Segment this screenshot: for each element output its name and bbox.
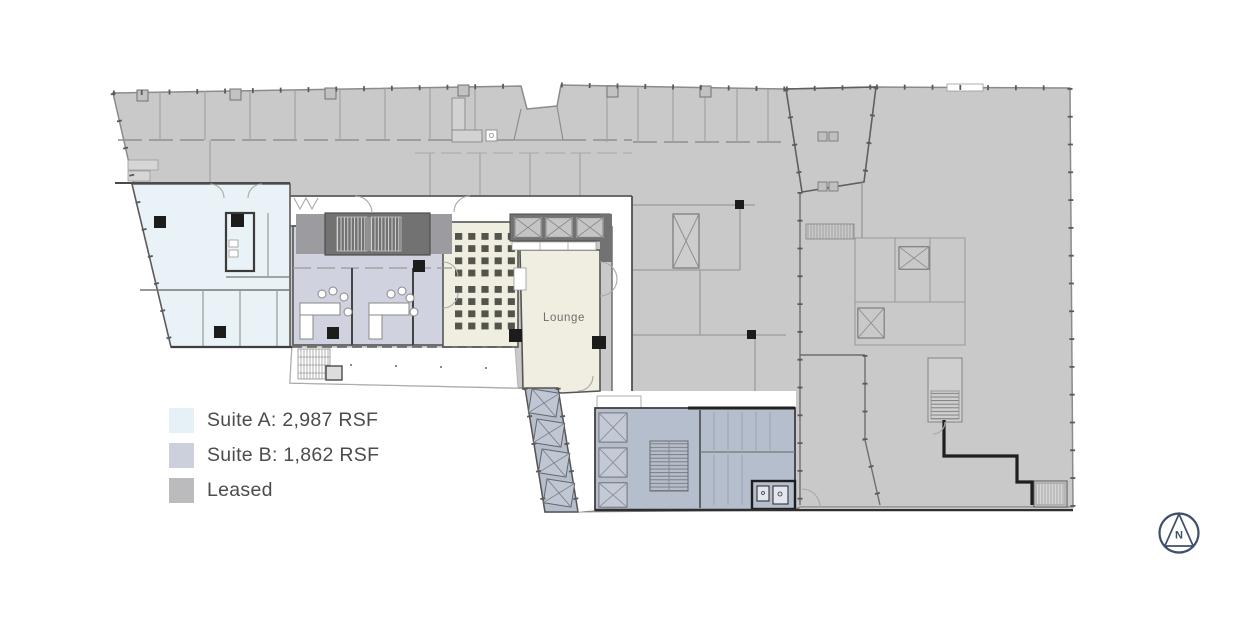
suite-b-label: Suite B: 1,862 RSF	[207, 444, 379, 467]
page: Lounge Suite A: 2,987 RSF Suite B: 1,862…	[0, 0, 1260, 620]
leased-swatch	[169, 478, 194, 503]
floor-plan: Lounge	[0, 0, 1260, 620]
roof-vent	[947, 84, 983, 91]
north-indicator: N	[1156, 510, 1202, 556]
terrace	[290, 347, 518, 388]
suite-a-label: Suite A: 2,987 RSF	[207, 409, 378, 432]
suite-b-swatch	[169, 443, 194, 468]
legend-item-leased: Leased	[169, 478, 379, 503]
legend-item-suite-a: Suite A: 2,987 RSF	[169, 408, 379, 433]
louver-grate	[806, 224, 854, 239]
suite-b-stair-block	[296, 213, 452, 255]
vestibule-box	[514, 268, 526, 290]
lounge-label: Lounge	[543, 312, 585, 324]
north-arrow-icon: N	[1156, 510, 1202, 556]
suite-a-region	[132, 184, 290, 347]
suite-a-swatch	[169, 408, 194, 433]
north-label: N	[1175, 530, 1183, 542]
leased-label: Leased	[207, 479, 273, 502]
terrace-grate	[298, 349, 330, 379]
legend-item-suite-b: Suite B: 1,862 RSF	[169, 443, 379, 468]
core-vestibule	[597, 396, 641, 408]
legend: Suite A: 2,987 RSF Suite B: 1,862 RSF Le…	[169, 408, 379, 513]
